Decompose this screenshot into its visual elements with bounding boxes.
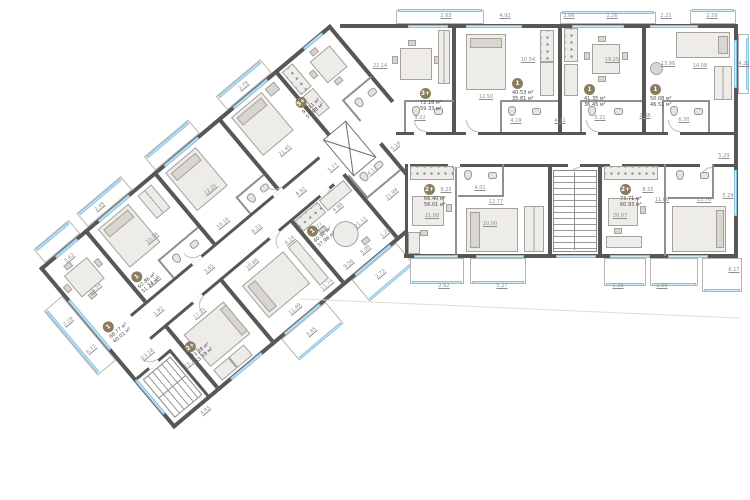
unit-badge: 2+	[620, 184, 631, 195]
dimension-label: 4.19	[510, 118, 521, 124]
dimension-label: 5.21	[594, 115, 605, 121]
dimension-label: 14.08	[693, 63, 707, 69]
dimension-label: 12.50	[479, 94, 493, 100]
dimension-label: 10.00	[483, 221, 497, 227]
dimension-label: 1.29	[612, 283, 623, 289]
unit-label: 141.35 м²36.45 м²	[584, 84, 624, 108]
dimension-label: 12.77	[489, 199, 503, 205]
dimension-label: 9.02	[414, 115, 425, 121]
unit-badge: 1	[512, 78, 523, 89]
dimension-label: 2.63	[440, 13, 451, 19]
unit-areas: 66.40 м²56.01 м²	[424, 196, 464, 208]
dimension-label: 1.48	[639, 113, 650, 119]
dimension-label: 13.76	[697, 197, 711, 203]
unit-label: 2+66.40 м²56.01 м²	[424, 184, 464, 208]
dimension-label: 5.29	[718, 153, 729, 159]
unit-areas: 72.16 м²59.33 м²	[420, 100, 460, 112]
dimension-label: 2.26	[606, 13, 617, 19]
dimension-label: 4.21	[554, 118, 565, 124]
unit-label: 150.08 м²46.51 м²	[650, 84, 690, 108]
unit-badge: 2+	[424, 184, 435, 195]
dimension-label: 22.14	[373, 63, 387, 69]
dimension-label: 21.08	[425, 213, 439, 219]
right-wing-labels: 2.634.922.662.262.212.594.2222.1412.5010…	[0, 0, 750, 500]
unit-area-living: 56.01 м²	[424, 202, 464, 208]
dimension-label: 20.97	[613, 213, 627, 219]
dimension-label: 19.25	[605, 57, 619, 63]
unit-badge: 1	[584, 84, 595, 95]
dimension-label: 13.96	[661, 61, 675, 67]
dimension-label: 6.17	[728, 267, 739, 273]
dimension-label: 10.54	[521, 57, 535, 63]
unit-area-living: 36.45 м²	[584, 102, 624, 108]
unit-area-living: 59.33 м²	[420, 106, 460, 112]
dimension-label: 5.27	[496, 283, 507, 289]
unit-badge: 1	[650, 84, 661, 95]
unit-area-living: 60.93 м²	[620, 202, 660, 208]
unit-area-living: 35.81 м²	[512, 96, 552, 102]
dimension-label: 2.59	[706, 13, 717, 19]
floor-plan: 5.6216.5410.5812.2521.4511.1610.161.923.…	[0, 0, 750, 500]
unit-areas: 50.08 м²46.51 м²	[650, 96, 690, 108]
unit-label: 2+73.71 м²60.93 м²	[620, 184, 660, 208]
dimension-label: 4.01	[474, 185, 485, 191]
unit-areas: 41.35 м²36.45 м²	[584, 96, 624, 108]
unit-areas: 40.53 м²35.81 м²	[512, 90, 552, 102]
unit-areas: 73.71 м²60.93 м²	[620, 196, 660, 208]
dimension-label: 2.21	[660, 13, 671, 19]
unit-label: 140.53 м²35.81 м²	[512, 78, 552, 102]
dimension-label: 2.62	[438, 283, 449, 289]
dimension-label: 2.66	[563, 13, 574, 19]
unit-area-living: 46.51 м²	[650, 102, 690, 108]
dimension-label: 5.29	[722, 193, 733, 199]
unit-badge: 3+	[420, 88, 431, 99]
unit-label: 3+72.16 м²59.33 м²	[420, 88, 460, 112]
dimension-label: 4.22	[738, 61, 749, 67]
dimension-label: 6.30	[678, 117, 689, 123]
dimension-label: 2.59	[656, 283, 667, 289]
dimension-label: 4.92	[499, 13, 510, 19]
